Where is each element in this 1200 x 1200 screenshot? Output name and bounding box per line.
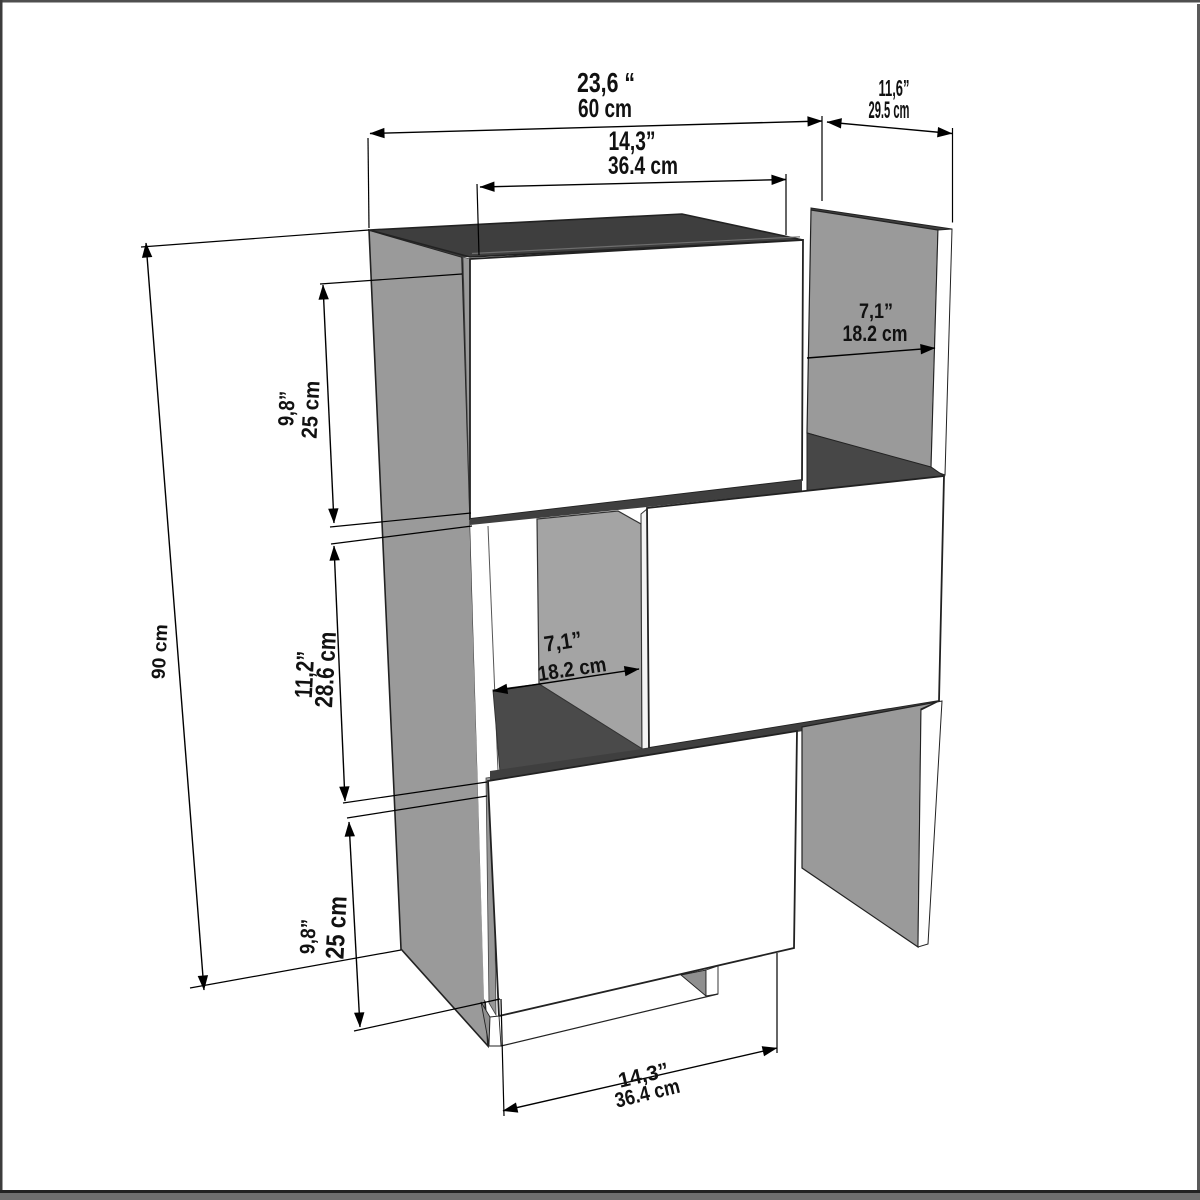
svg-text:90 cm: 90 cm bbox=[149, 624, 173, 680]
svg-text:18.2 cm: 18.2 cm bbox=[843, 321, 908, 346]
svg-text:7,1”: 7,1” bbox=[859, 300, 893, 323]
svg-text:60 cm: 60 cm bbox=[578, 93, 632, 123]
svg-text:9,8”: 9,8” bbox=[273, 390, 300, 426]
svg-text:36.4 cm: 36.4 cm bbox=[608, 152, 678, 180]
svg-text:29.5 cm: 29.5 cm bbox=[869, 97, 910, 124]
svg-text:28.6 cm: 28.6 cm bbox=[310, 631, 342, 708]
svg-text:25 cm: 25 cm bbox=[319, 895, 352, 959]
svg-text:9,8”: 9,8” bbox=[296, 919, 321, 955]
svg-text:25 cm: 25 cm bbox=[297, 380, 325, 439]
